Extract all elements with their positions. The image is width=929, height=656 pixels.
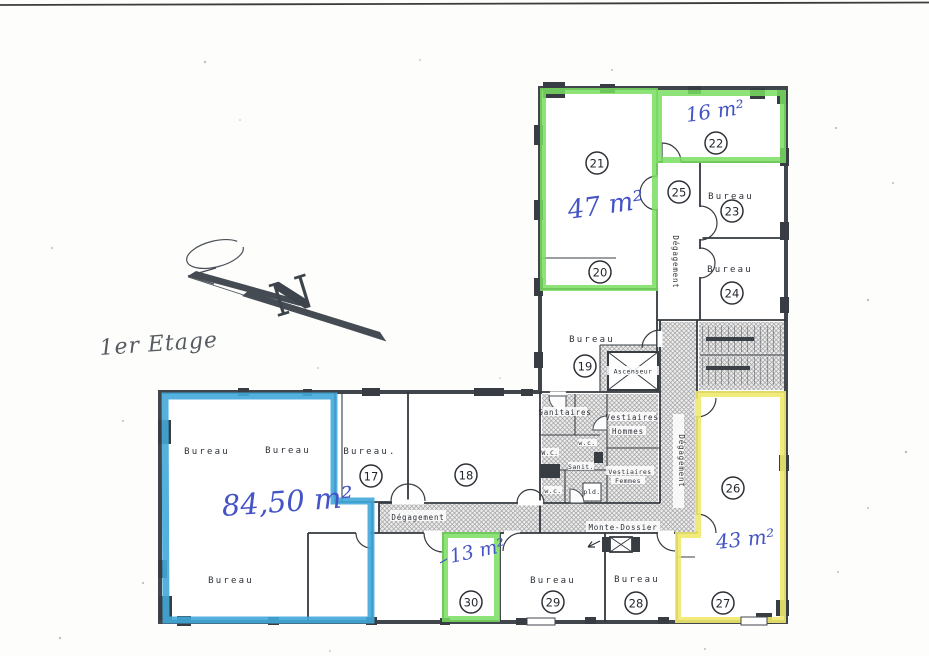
- svg-text:27: 27: [716, 597, 731, 611]
- stairwell: [700, 326, 784, 385]
- room-18-number: 18: [455, 464, 477, 486]
- room-30-number: 30: [460, 591, 482, 613]
- floor-plan-canvas: Ascenseur Monte-Dossier Bureau Bureau Bu…: [0, 0, 929, 656]
- degagement-label-corridor-25: Dégagement: [671, 235, 680, 288]
- scan-edge-artifact: [0, 3, 929, 6]
- vestiaires-hommes-label-2: Hommes: [612, 427, 644, 436]
- bureau-label-24: Bureau: [707, 265, 753, 275]
- svg-text:28: 28: [629, 597, 644, 611]
- bureau-label-19: Bureau: [569, 335, 615, 345]
- room-28-number: 28: [625, 592, 647, 614]
- bureau-label-28: Bureau: [614, 575, 660, 585]
- svg-text:30: 30: [464, 596, 479, 610]
- degagement-label-corridor-vertical: Dégagement: [677, 434, 686, 487]
- bureau-label-29: Bureau: [530, 576, 576, 586]
- vestiaires-hommes-label-1: Vestiaires: [605, 413, 658, 422]
- elevator-label: Ascenseur: [614, 368, 653, 376]
- svg-text:25: 25: [672, 186, 687, 200]
- room-22-number: 22: [705, 132, 727, 154]
- room-25-number: 25: [668, 181, 690, 203]
- svg-text:29: 29: [546, 596, 561, 610]
- svg-text:19: 19: [578, 360, 593, 374]
- room-29-number: 29: [542, 591, 564, 613]
- vestiaires-femmes-label-1: Vestiaires: [608, 468, 651, 476]
- degagement-label-corridor-main: Dégagement: [391, 513, 444, 522]
- room-23-number: 23: [721, 200, 743, 222]
- svg-text:21: 21: [590, 157, 605, 171]
- svg-text:20: 20: [593, 266, 608, 280]
- wc-label-3: w.c.: [544, 487, 561, 495]
- svg-text:23: 23: [725, 205, 740, 219]
- bureau-label-blue-3: Bureau: [208, 576, 254, 586]
- wc-label-1: w.c.: [578, 439, 595, 447]
- north-arrow: N: [184, 234, 386, 341]
- room-27-number: 27: [712, 592, 734, 614]
- wc-label-2: W.C.: [541, 449, 558, 457]
- svg-text:18: 18: [459, 469, 474, 483]
- scanned-floor-plan-page: Ascenseur Monte-Dossier Bureau Bureau Bu…: [0, 0, 929, 656]
- room-26-number: 26: [722, 477, 744, 499]
- bureau-label-blue-1: Bureau: [184, 447, 230, 457]
- monte-dossier-label: Monte-Dossier: [588, 523, 657, 532]
- pld-label: pld.: [583, 488, 600, 496]
- north-letter: N: [264, 264, 320, 328]
- svg-text:26: 26: [726, 482, 741, 496]
- vestiaires-femmes-label-2: Femmes: [615, 477, 641, 485]
- room-19-number: 19: [574, 355, 596, 377]
- room-24-number: 24: [721, 282, 743, 304]
- sanit-label: Sanit.: [568, 463, 594, 471]
- svg-text:17: 17: [364, 470, 379, 484]
- sanitaires-label: Sanitaires: [538, 408, 591, 417]
- elevator: Ascenseur: [607, 352, 659, 390]
- floor-label: 1er Etage: [99, 328, 219, 361]
- svg-text:24: 24: [725, 287, 740, 301]
- room-21-number: 21: [586, 152, 608, 174]
- room-17-number: 17: [360, 465, 382, 487]
- bureau-label-blue-2: Bureau: [265, 446, 311, 456]
- room-20-number: 20: [589, 261, 611, 283]
- svg-text:22: 22: [709, 137, 724, 151]
- bureau-label-17: Bureau.: [343, 447, 396, 457]
